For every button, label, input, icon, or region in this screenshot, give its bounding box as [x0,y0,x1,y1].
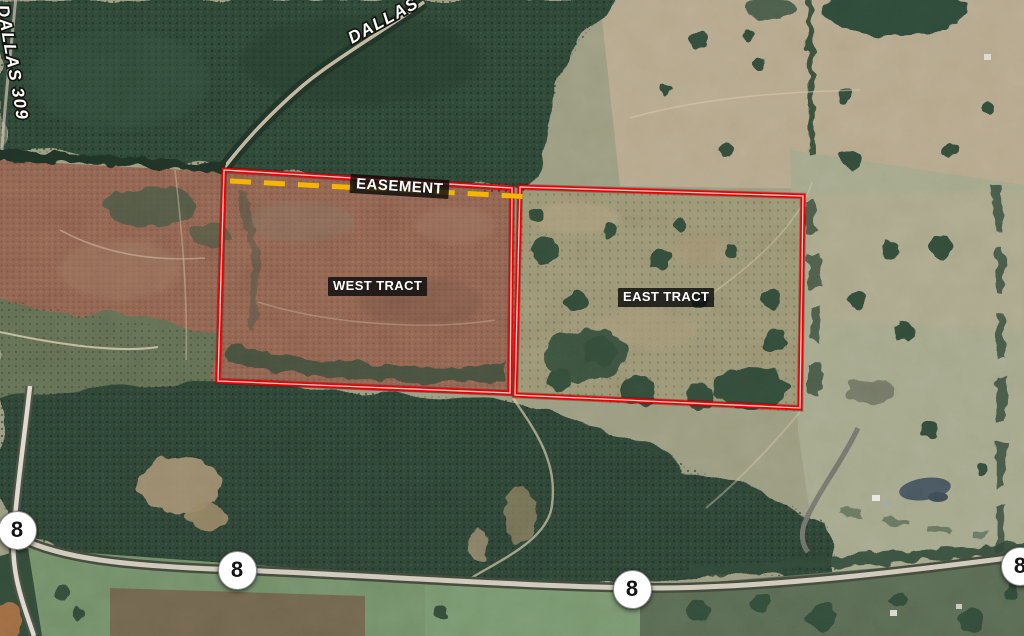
highway-8-shield: 8 [0,511,37,550]
annotation-layer: DALLAS 309 DALLAS [0,0,1024,636]
highway-8-shield: 8 [218,551,257,590]
west-tract-label: WEST TRACT [328,277,427,296]
highway-8-shield-number: 8 [626,576,638,602]
east-tract-label: EAST TRACT [618,288,714,307]
highway-8-shield-number: 8 [1014,553,1024,579]
highway-8-shield-number: 8 [231,557,243,583]
aerial-property-map: DALLAS 309 DALLAS WEST TRACT EAST TRACT … [0,0,1024,636]
highway-8-shield-number: 8 [11,517,23,543]
road-label-dallas-309: DALLAS 309 [0,3,32,122]
highway-8-shield: 8 [613,570,652,609]
road-label-dallas: DALLAS [345,0,422,47]
